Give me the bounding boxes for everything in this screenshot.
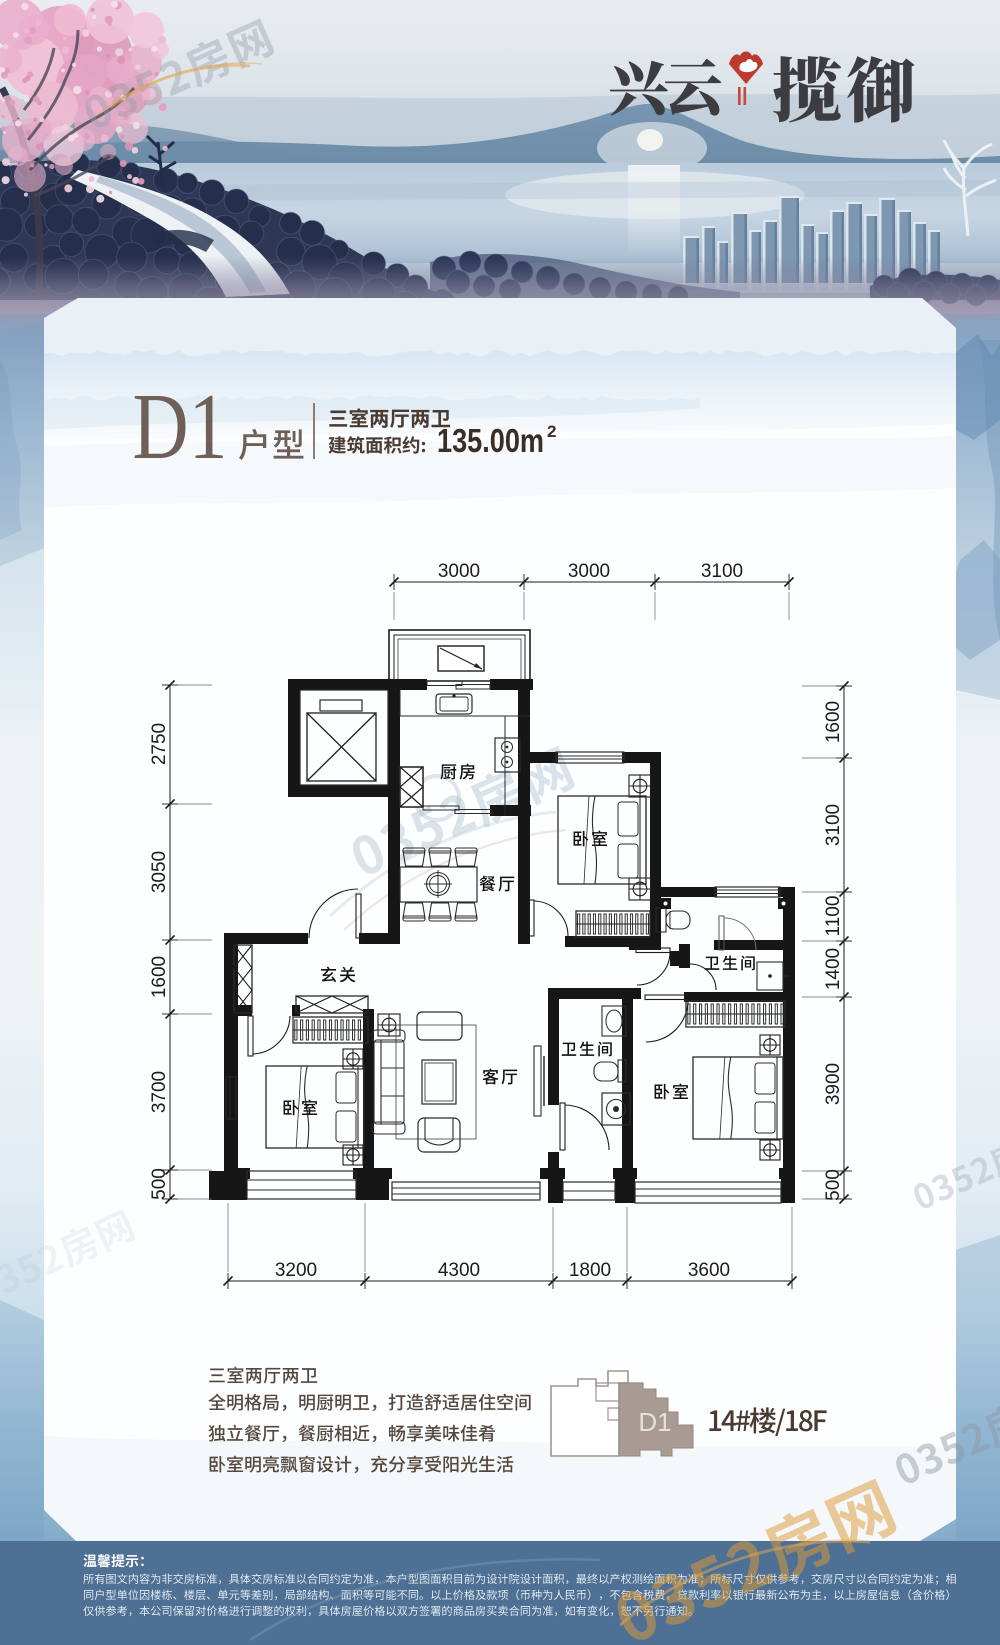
svg-text:1600: 1600	[149, 956, 170, 998]
svg-text:1800: 1800	[569, 1260, 611, 1281]
svg-text:3050: 3050	[149, 851, 170, 893]
svg-text:3000: 3000	[568, 561, 610, 582]
svg-text:1400: 1400	[823, 948, 844, 990]
svg-text:3100: 3100	[701, 561, 743, 582]
svg-text:3000: 3000	[438, 561, 480, 582]
svg-text:500: 500	[823, 1169, 844, 1201]
svg-text:D1: D1	[638, 1407, 671, 1437]
svg-text:135.00m: 135.00m	[437, 422, 544, 459]
svg-text:D1: D1	[133, 375, 228, 479]
svg-text:3900: 3900	[823, 1063, 844, 1105]
svg-text:3200: 3200	[275, 1260, 317, 1281]
svg-text:2: 2	[547, 422, 556, 441]
svg-text:3100: 3100	[823, 804, 844, 846]
svg-text:500: 500	[149, 1168, 170, 1200]
svg-text:3600: 3600	[688, 1260, 730, 1281]
svg-text:1100: 1100	[823, 896, 844, 937]
svg-text:3700: 3700	[149, 1071, 170, 1113]
svg-text:4300: 4300	[438, 1260, 480, 1281]
svg-text:1600: 1600	[823, 701, 844, 743]
svg-text:2750: 2750	[149, 723, 170, 765]
